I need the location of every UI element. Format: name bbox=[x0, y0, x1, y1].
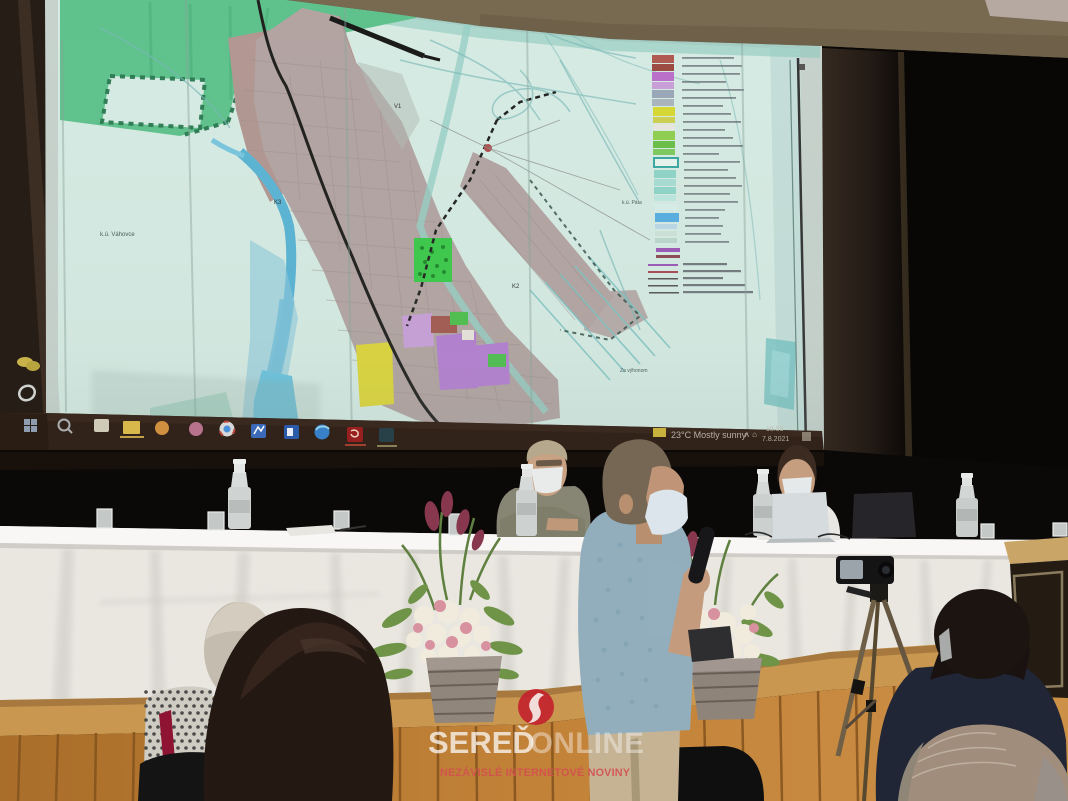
svg-text:SEREĎ: SEREĎ bbox=[428, 724, 535, 760]
svg-text:NEZÁVISLÉ INTERNETOVÉ NOVINY: NEZÁVISLÉ INTERNETOVÉ NOVINY bbox=[440, 766, 631, 779]
svg-text:∧ ⌂: ∧ ⌂ bbox=[744, 430, 757, 439]
svg-text:15:53: 15:53 bbox=[766, 426, 784, 433]
svg-text:7.8.2021: 7.8.2021 bbox=[762, 436, 789, 443]
svg-text:ONLINE: ONLINE bbox=[530, 727, 644, 760]
svg-text:23°C Mostly sunny: 23°C Mostly sunny bbox=[671, 430, 747, 440]
